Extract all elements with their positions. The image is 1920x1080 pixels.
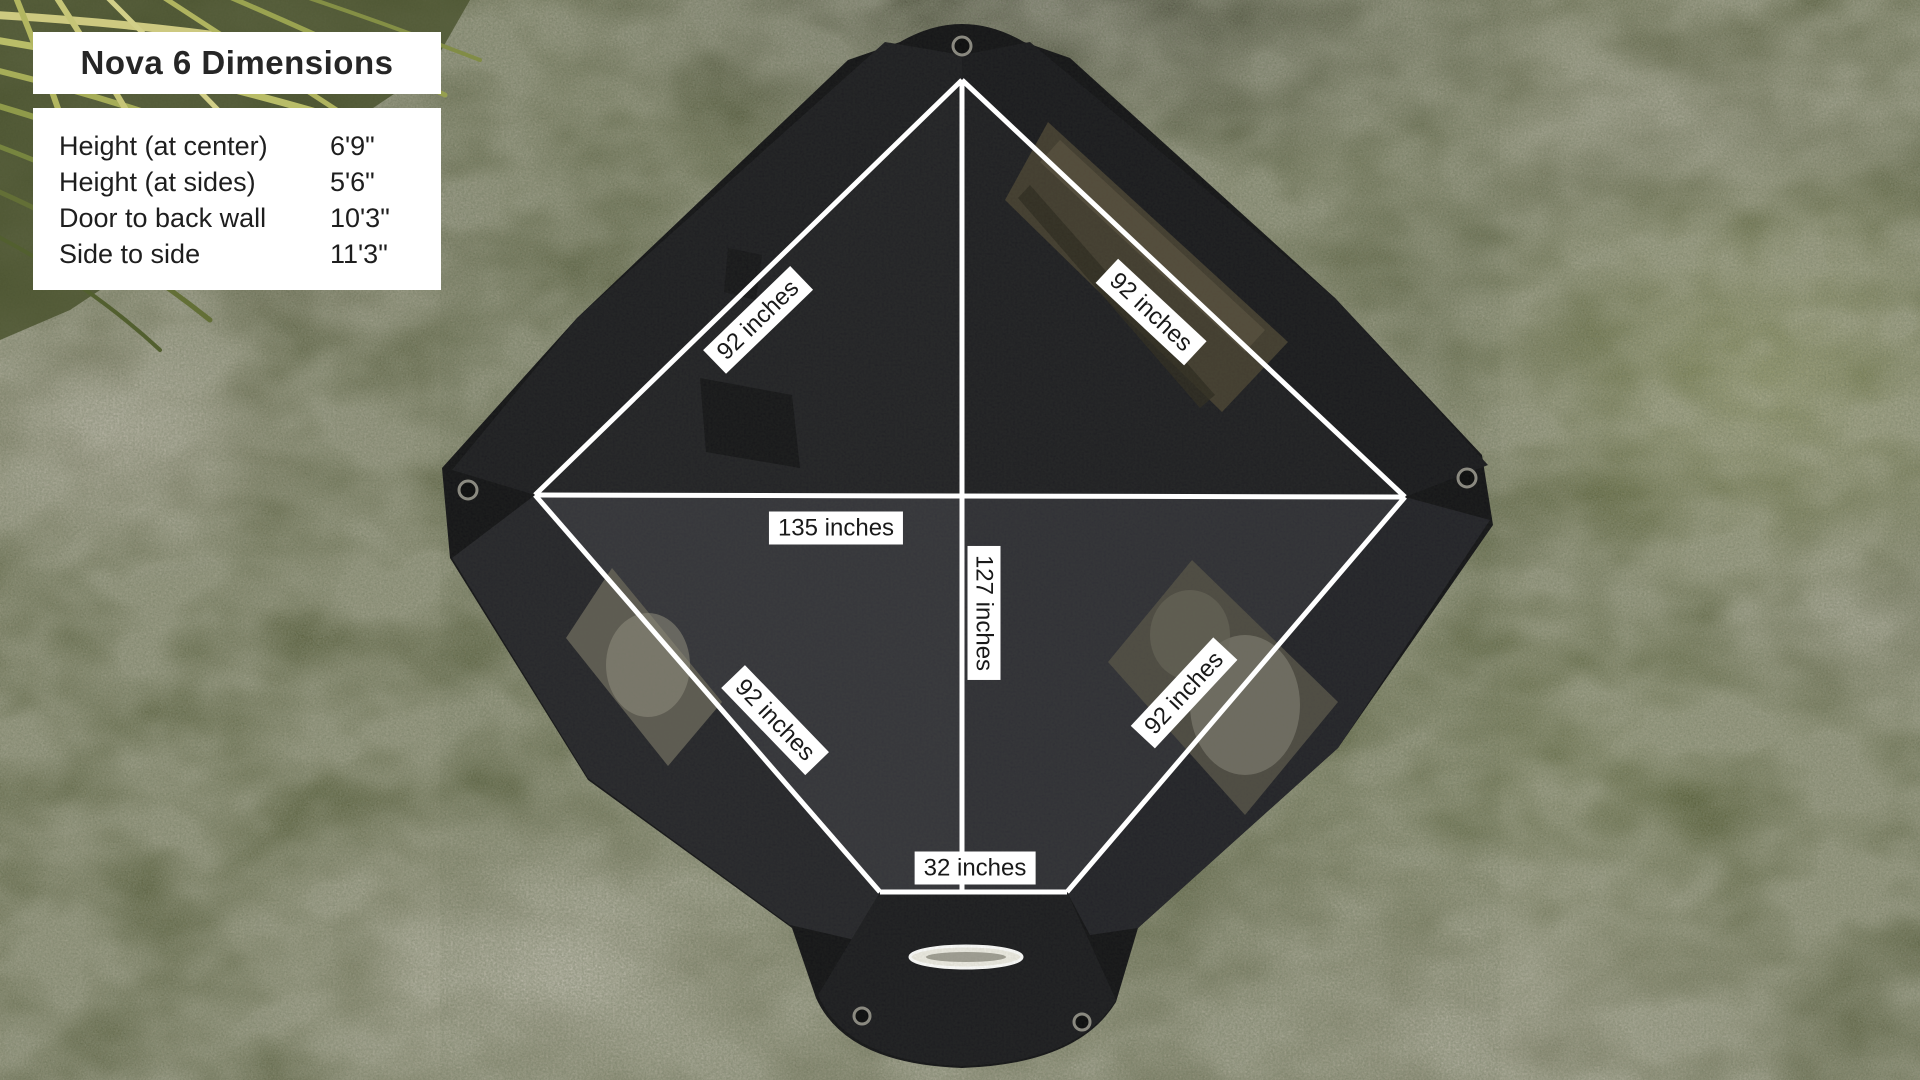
spec-value: 11'3" <box>330 236 388 272</box>
spec-value: 6'9" <box>330 128 375 164</box>
spec-row-height-center: Height (at center) 6'9" <box>33 128 441 164</box>
spec-label: Side to side <box>59 239 200 269</box>
spec-row-height-sides: Height (at sides) 5'6" <box>33 164 441 200</box>
dimension-label-depth: 127 inches <box>968 546 1001 680</box>
tent-dimensions-infographic: 92 inches 92 inches 92 inches 92 inches … <box>0 0 1920 1080</box>
dimensions-table: Height (at center) 6'9" Height (at sides… <box>33 108 441 290</box>
card-title: Nova 6 Dimensions <box>33 32 441 94</box>
spec-row-side-to-side: Side to side 11'3" <box>33 236 441 272</box>
spec-label: Door to back wall <box>59 203 266 233</box>
tent-body <box>440 0 1500 1080</box>
spec-label: Height (at center) <box>59 131 268 161</box>
spec-value: 5'6" <box>330 164 375 200</box>
dimension-label-width: 135 inches <box>769 512 903 545</box>
spec-value: 10'3" <box>330 200 390 236</box>
dimension-label-door-width: 32 inches <box>915 852 1036 885</box>
spec-row-door-to-back: Door to back wall 10'3" <box>33 200 441 236</box>
dimensions-card: Nova 6 Dimensions Height (at center) 6'9… <box>33 32 441 290</box>
spec-label: Height (at sides) <box>59 167 256 197</box>
measure-line-width <box>535 495 1405 497</box>
